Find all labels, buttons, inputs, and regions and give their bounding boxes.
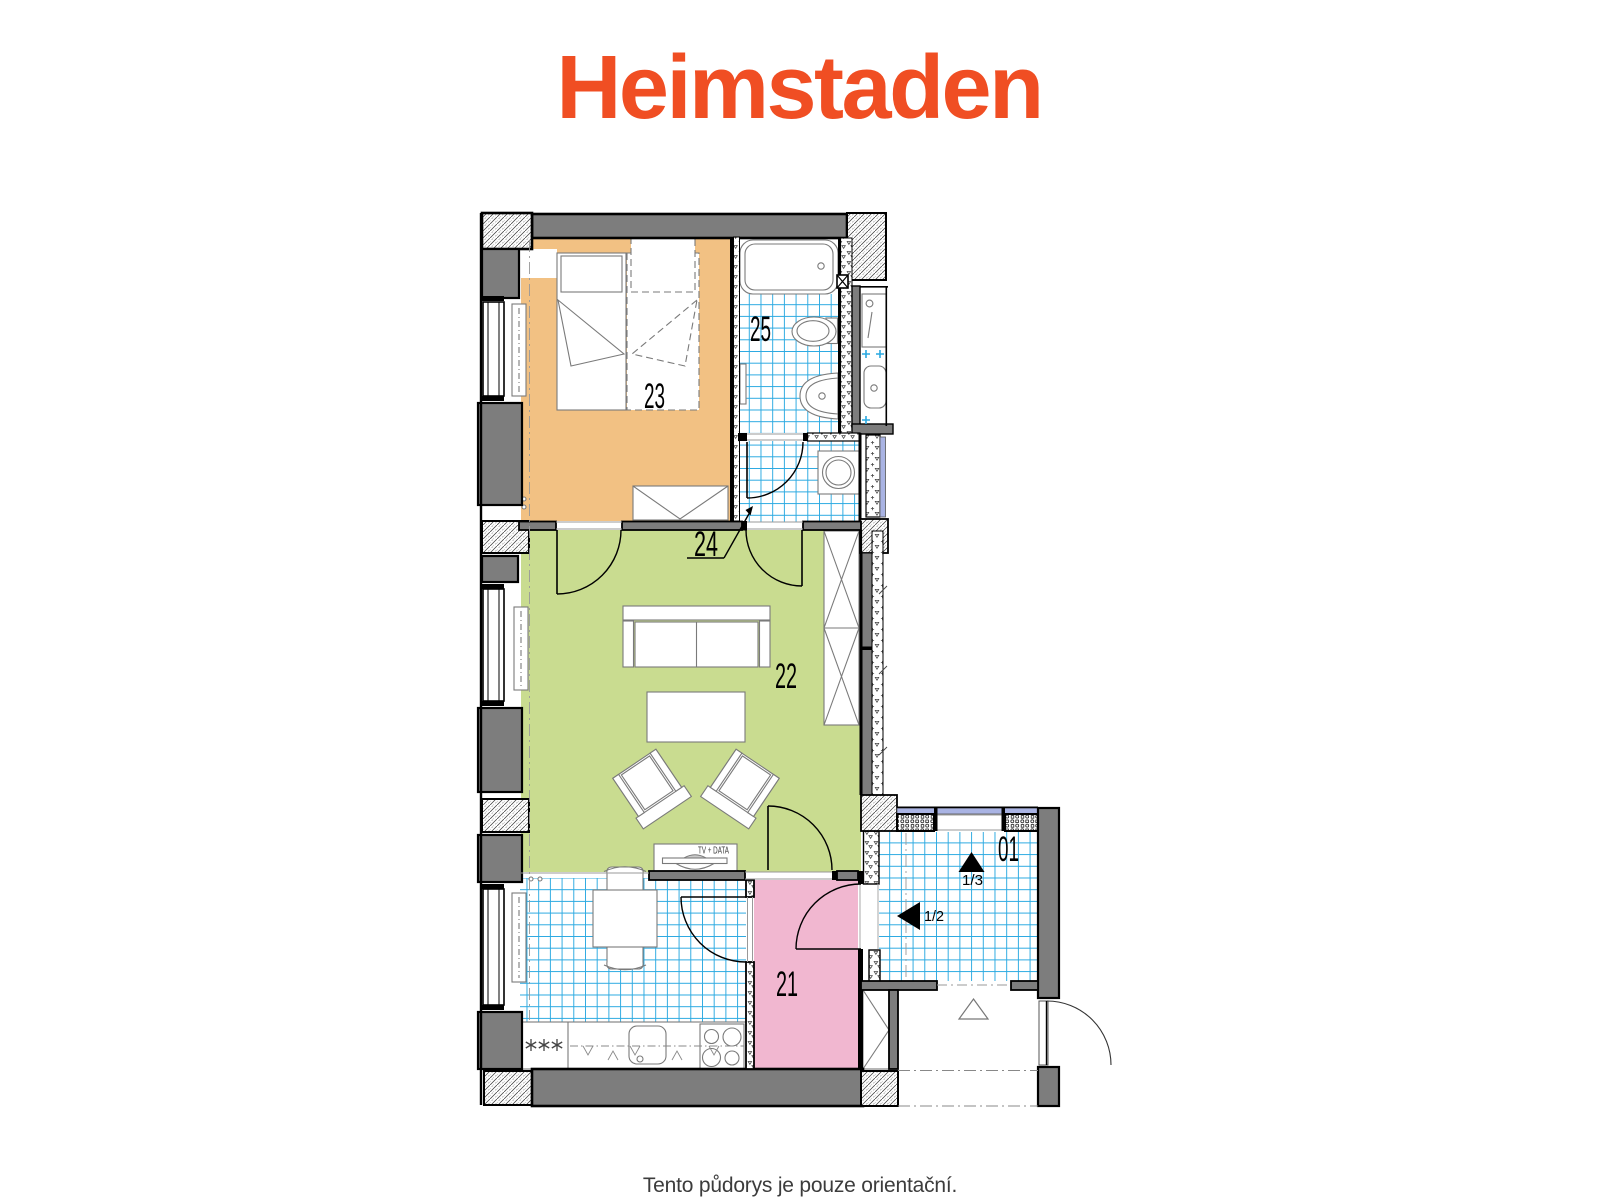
- svg-text:TV + DATA: TV + DATA: [698, 845, 729, 857]
- svg-text:25: 25: [750, 310, 771, 349]
- svg-text:Tento půdorys je pouze orienta: Tento půdorys je pouze orientační.: [643, 1174, 957, 1197]
- svg-text:1/2: 1/2: [924, 908, 944, 925]
- svg-text:23: 23: [644, 377, 665, 416]
- svg-text:01: 01: [998, 830, 1019, 869]
- svg-text:22: 22: [775, 657, 797, 696]
- svg-text:1/3: 1/3: [962, 872, 983, 889]
- svg-text:Heimstaden: Heimstaden: [556, 38, 1041, 138]
- svg-text:21: 21: [776, 965, 798, 1004]
